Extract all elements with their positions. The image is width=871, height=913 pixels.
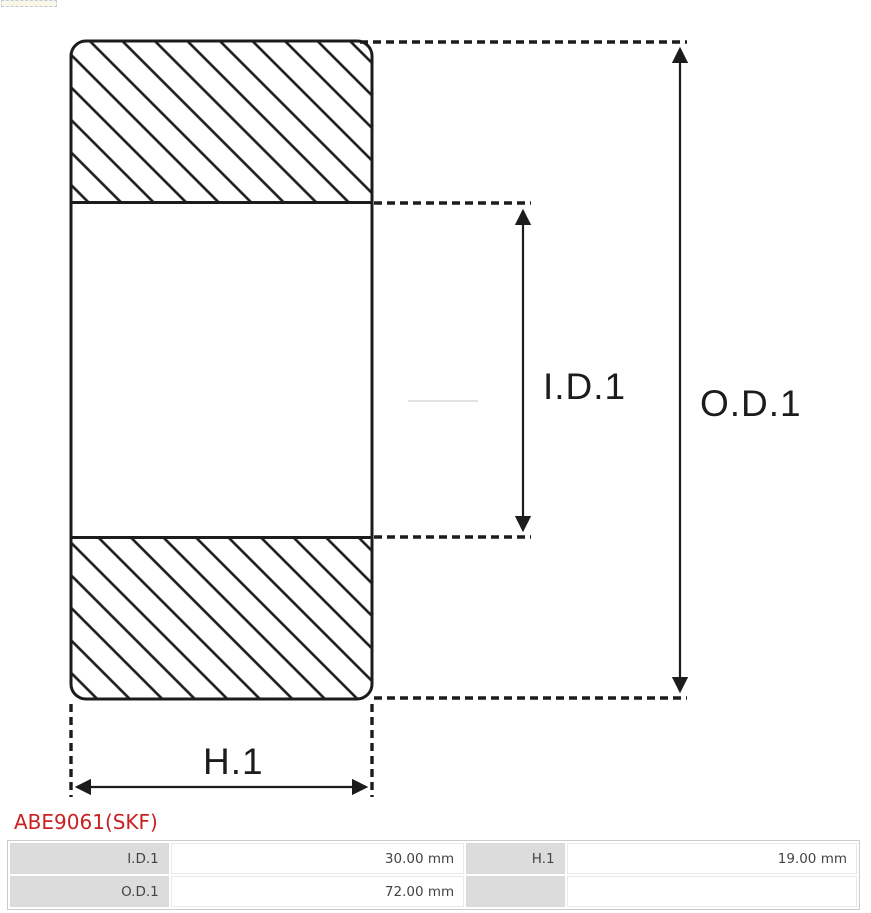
spec-value-od1: 72.00 mm xyxy=(171,876,464,907)
spec-row-1: I.D.1 30.00 mm H.1 19.00 mm xyxy=(10,843,857,874)
h-dimension-label: H.1 xyxy=(203,741,264,782)
spec-label-h1: H.1 xyxy=(466,843,564,874)
outer-race-hatch-top xyxy=(69,40,374,203)
spec-value-h1: 19.00 mm xyxy=(567,843,857,874)
spec-value-id1: 30.00 mm xyxy=(171,843,464,874)
spec-row-2: O.D.1 72.00 mm xyxy=(10,876,857,907)
bearing-diagram: I.D.1 O.D.1 H.1 xyxy=(0,0,871,805)
spec-label-empty xyxy=(466,876,564,907)
bearing-product-figure: I.D.1 O.D.1 H.1 ABE9061(SKF) I.D.1 30.00… xyxy=(0,0,871,913)
bearing-cross-section xyxy=(69,40,374,700)
outer-race-hatch-bottom xyxy=(69,537,374,700)
spec-label-od1: O.D.1 xyxy=(10,876,169,907)
spec-value-empty xyxy=(567,876,857,907)
id-dimension-label: I.D.1 xyxy=(543,366,626,407)
spec-table: I.D.1 30.00 mm H.1 19.00 mm O.D.1 72.00 … xyxy=(7,840,860,910)
spec-label-id1: I.D.1 xyxy=(10,843,169,874)
od-dimension-label: O.D.1 xyxy=(700,383,802,424)
part-number-link[interactable]: ABE9061(SKF) xyxy=(14,810,158,834)
